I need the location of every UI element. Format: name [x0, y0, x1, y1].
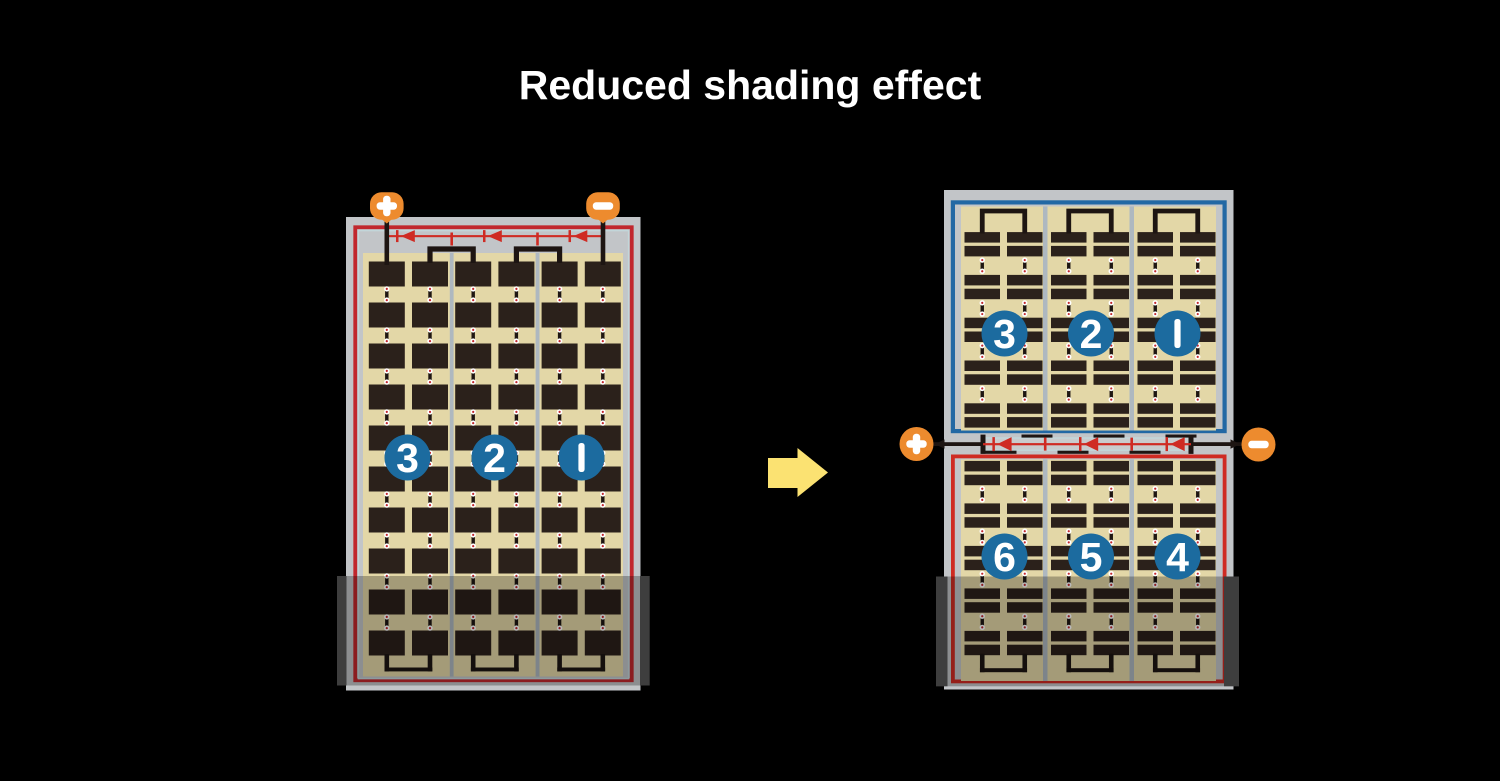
- svg-text:5: 5: [1080, 534, 1103, 580]
- svg-text:3: 3: [993, 311, 1016, 357]
- svg-text:2: 2: [483, 435, 506, 481]
- svg-text:Reduced shading effect: Reduced shading effect: [519, 62, 982, 108]
- svg-text:4: 4: [1166, 534, 1189, 580]
- svg-text:3: 3: [396, 435, 419, 481]
- svg-text:6: 6: [993, 534, 1016, 580]
- svg-text:2: 2: [1080, 311, 1103, 357]
